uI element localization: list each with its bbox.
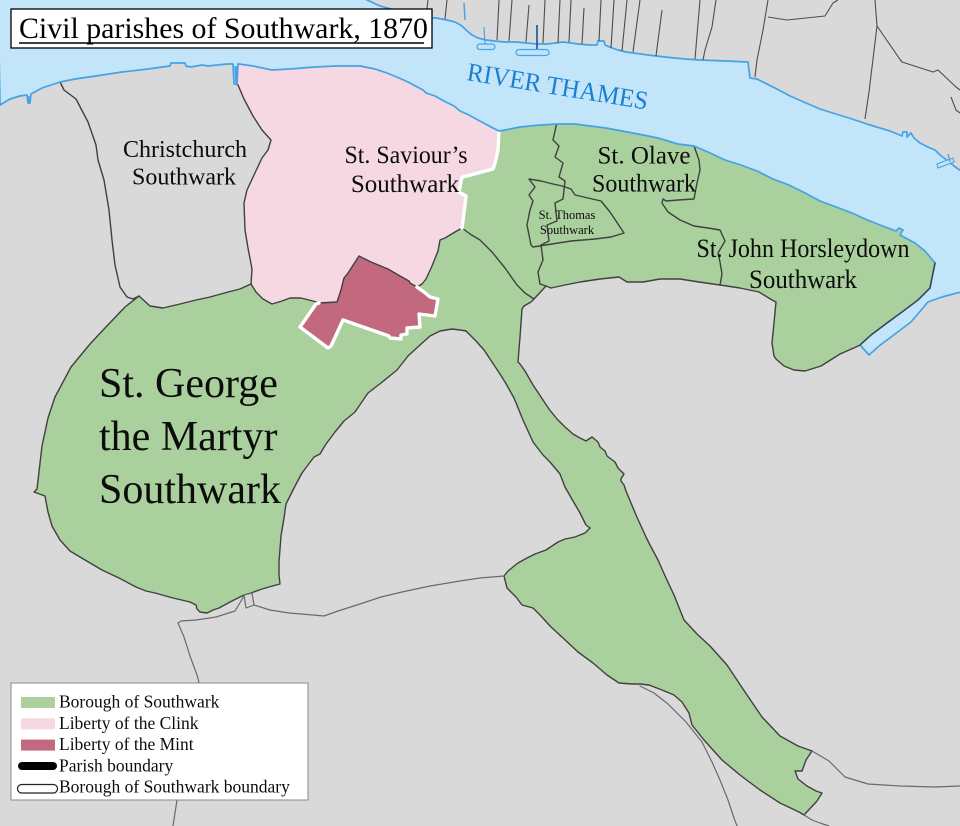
svg-text:Liberty of the Clink: Liberty of the Clink [59,713,199,733]
svg-text:St. Thomas: St. Thomas [539,208,596,222]
svg-text:the Martyr: the Martyr [99,414,277,460]
svg-text:Borough of Southwark boundary: Borough of Southwark boundary [59,777,290,797]
svg-text:Southwark: Southwark [132,165,236,191]
svg-text:Parish boundary: Parish boundary [59,755,173,775]
svg-text:Civil parishes of Southwark, 1: Civil parishes of Southwark, 1870 [19,12,428,45]
svg-text:Borough of Southwark: Borough of Southwark [59,692,220,712]
svg-text:Liberty of the Mint: Liberty of the Mint [59,734,194,754]
svg-text:Southwark: Southwark [99,467,281,513]
svg-text:Christchurch: Christchurch [123,137,247,163]
svg-text:Southwark: Southwark [592,171,696,198]
svg-text:St. Olave: St. Olave [597,143,690,170]
svg-text:Southwark: Southwark [749,265,857,294]
svg-text:St. John Horsleydown: St. John Horsleydown [697,234,910,263]
svg-text:St. Saviour’s: St. Saviour’s [345,142,468,169]
svg-text:St. George: St. George [99,361,278,407]
svg-text:Southwark: Southwark [540,223,595,237]
svg-text:Southwark: Southwark [351,171,460,198]
